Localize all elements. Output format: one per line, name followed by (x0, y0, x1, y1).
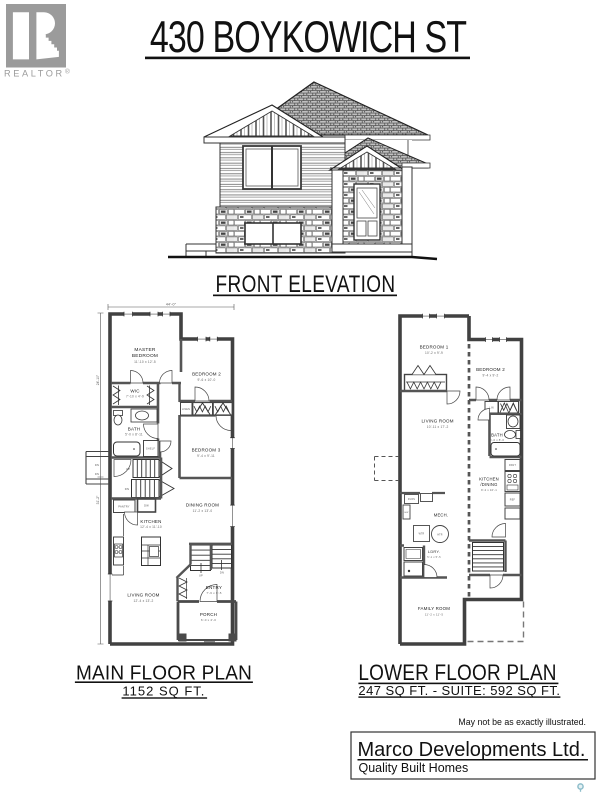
svg-text:5'-1 x 5'-5: 5'-1 x 5'-5 (427, 555, 441, 559)
svg-text:WIC: WIC (130, 389, 140, 394)
svg-text:BEDROOM 2: BEDROOM 2 (192, 372, 221, 377)
svg-text:5'-0 x 8'-11: 5'-0 x 8'-11 (125, 433, 143, 437)
svg-text:7'-6 x 6'-5: 7'-6 x 6'-5 (206, 591, 221, 595)
svg-text:HTR: HTR (437, 535, 442, 537)
svg-text:BEDROOM 1: BEDROOM 1 (420, 345, 449, 350)
svg-text:DN: DN (95, 472, 99, 476)
svg-text:MAIN FLOOR PLAN: MAIN FLOOR PLAN (76, 662, 252, 685)
svg-text:/DINING: /DINING (480, 482, 497, 487)
svg-text:BEDROOM: BEDROOM (132, 353, 158, 359)
svg-text:UP: UP (126, 467, 130, 471)
svg-text:LIVING ROOM: LIVING ROOM (421, 419, 453, 424)
svg-text:PORCH: PORCH (200, 612, 217, 617)
svg-text:WTR: WTR (419, 534, 425, 536)
svg-text:9'-2 x 10'-1: 9'-2 x 10'-1 (481, 488, 497, 492)
svg-text:9'-6 x 10'-0: 9'-6 x 10'-0 (198, 378, 216, 382)
svg-text:DN: DN (125, 487, 129, 491)
svg-text:DW: DW (144, 504, 149, 508)
svg-text:®: ® (65, 68, 70, 76)
svg-text:PANTRY: PANTRY (118, 505, 130, 509)
svg-text:KITCHEN: KITCHEN (140, 519, 161, 524)
svg-text:9'-4 x 9'-11: 9'-4 x 9'-11 (197, 454, 215, 458)
svg-text:KITCHEN: KITCHEN (479, 477, 499, 482)
svg-text:LDRY.: LDRY. (428, 549, 440, 554)
svg-text:SHELF: SHELF (146, 447, 156, 451)
svg-text:FAMILY ROOM: FAMILY ROOM (418, 606, 450, 611)
svg-text:LOWER FLOOR PLAN: LOWER FLOOR PLAN (358, 661, 556, 686)
svg-text:10'-2 x 9'-9: 10'-2 x 9'-9 (425, 351, 443, 355)
svg-text:44'-0": 44'-0" (166, 303, 177, 307)
svg-text:FRONT ELEVATION: FRONT ELEVATION (215, 270, 395, 298)
svg-text:11'-2 x 13'-0: 11'-2 x 13'-0 (193, 509, 213, 513)
svg-text:UP: UP (199, 574, 203, 578)
svg-text:ENTRY: ENTRY (206, 585, 222, 590)
svg-text:DN: DN (95, 463, 99, 467)
svg-text:LIN: LIN (489, 407, 493, 410)
svg-text:Marco Developments Ltd.: Marco Developments Ltd. (358, 739, 586, 761)
svg-text:FURN: FURN (408, 499, 415, 501)
svg-text:1152 SQ FT.: 1152 SQ FT. (122, 684, 205, 699)
svg-text:24'-10": 24'-10" (96, 374, 100, 385)
svg-text:5'-0 x 8'-0: 5'-0 x 8'-0 (490, 438, 505, 442)
svg-text:12'-4 x 11'-10: 12'-4 x 11'-10 (140, 525, 162, 529)
svg-text:May not be as exactly illustra: May not be as exactly illustrated. (458, 717, 586, 727)
svg-text:6'-0 x 4'-0: 6'-0 x 4'-0 (201, 618, 216, 622)
svg-text:BEDROOM 3: BEDROOM 3 (192, 448, 221, 453)
svg-text:11'-2 x 11'-5: 11'-2 x 11'-5 (425, 613, 444, 617)
svg-text:430 BOYKOWICH ST: 430 BOYKOWICH ST (150, 13, 467, 62)
svg-text:BEDROOM 2: BEDROOM 2 (476, 367, 505, 372)
svg-text:LINEN: LINEN (182, 408, 190, 411)
svg-text:MASTER: MASTER (134, 347, 156, 353)
svg-text:BATH: BATH (128, 427, 140, 432)
svg-text:12'-4 x 13'-2: 12'-4 x 13'-2 (134, 599, 154, 603)
svg-text:10'-11 x 17'-2: 10'-11 x 17'-2 (427, 425, 449, 429)
svg-text:BATH: BATH (491, 433, 503, 438)
svg-text:7'-10 x 4'-9: 7'-10 x 4'-9 (126, 395, 144, 399)
svg-text:PANT: PANT (509, 464, 516, 467)
svg-text:DN: DN (220, 571, 224, 575)
svg-text:9'-4 x 9'-2: 9'-4 x 9'-2 (483, 374, 499, 378)
svg-text:LIVING ROOM: LIVING ROOM (127, 593, 159, 598)
svg-text:DINING ROOM: DINING ROOM (186, 503, 219, 508)
svg-text:31'-2": 31'-2" (96, 495, 100, 504)
svg-text:11'-10 x 12'-5: 11'-10 x 12'-5 (134, 360, 156, 364)
svg-text:REALTOR: REALTOR (4, 69, 65, 79)
svg-text:247 SQ FT. - SUITE: 592 SQ FT.: 247 SQ FT. - SUITE: 592 SQ FT. (358, 683, 560, 698)
svg-text:MECH.: MECH. (434, 513, 449, 518)
svg-text:Quality Built Homes: Quality Built Homes (359, 761, 469, 775)
svg-text:REF: REF (510, 499, 516, 502)
